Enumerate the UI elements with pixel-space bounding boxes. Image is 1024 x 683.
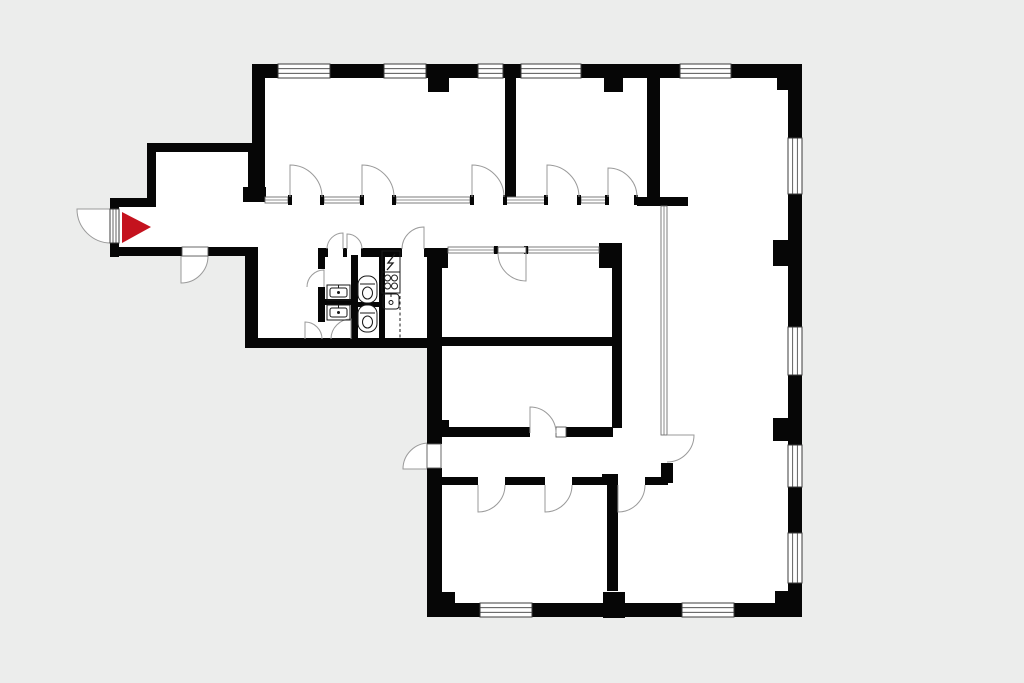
- exterior-door-swing: [181, 256, 208, 283]
- wall: [147, 143, 156, 207]
- door-panel: [498, 247, 526, 253]
- wall: [428, 78, 449, 92]
- wall: [248, 145, 258, 193]
- glazed-partition: [324, 197, 360, 203]
- wall: [647, 64, 660, 204]
- wall: [505, 78, 516, 199]
- wall: [110, 247, 182, 256]
- wall: [243, 187, 266, 202]
- wall: [110, 198, 119, 209]
- wall: [607, 485, 618, 591]
- wall: [351, 255, 358, 340]
- glazed-partition: [661, 206, 667, 435]
- wall: [773, 240, 788, 266]
- wall: [383, 248, 402, 257]
- floor-plan: [0, 0, 1024, 683]
- window: [788, 327, 802, 375]
- wall: [572, 477, 602, 485]
- window: [788, 138, 802, 194]
- wall: [318, 255, 325, 269]
- wall: [599, 243, 622, 268]
- wall: [245, 247, 258, 348]
- window: [680, 64, 731, 78]
- door-panel: [556, 427, 566, 437]
- window: [384, 64, 426, 78]
- wall: [442, 337, 613, 346]
- wall: [427, 468, 442, 603]
- wall: [505, 477, 545, 485]
- floor-plan-canvas: [0, 0, 1024, 683]
- door-jamb: [494, 246, 498, 254]
- wall: [773, 418, 788, 441]
- wall: [566, 427, 613, 437]
- toilet: [358, 305, 377, 332]
- window: [278, 64, 330, 78]
- window: [682, 603, 734, 617]
- wall: [435, 248, 448, 268]
- window: [110, 209, 119, 243]
- wall: [645, 477, 668, 485]
- wall: [442, 427, 530, 437]
- window: [480, 603, 532, 617]
- wall: [603, 592, 625, 618]
- exterior-door-swing: [403, 443, 429, 469]
- wall: [343, 248, 347, 257]
- wall: [604, 78, 623, 92]
- wall: [602, 474, 618, 485]
- window: [788, 445, 802, 487]
- wall: [245, 338, 439, 348]
- wall: [612, 268, 622, 428]
- glazed-partition: [528, 247, 599, 253]
- window: [521, 64, 581, 78]
- wall: [637, 197, 688, 206]
- exterior-door-swing: [77, 209, 111, 243]
- wall: [147, 143, 256, 152]
- glazed-partition: [265, 197, 288, 203]
- glazed-partition: [448, 247, 494, 253]
- door-panel: [182, 247, 208, 256]
- door-panel: [427, 444, 441, 468]
- glazed-partition: [581, 197, 606, 203]
- window: [478, 64, 503, 78]
- glazed-partition: [506, 197, 545, 203]
- toilet: [358, 276, 377, 303]
- wall: [438, 477, 478, 485]
- glazed-partition: [396, 197, 470, 203]
- window: [788, 533, 802, 583]
